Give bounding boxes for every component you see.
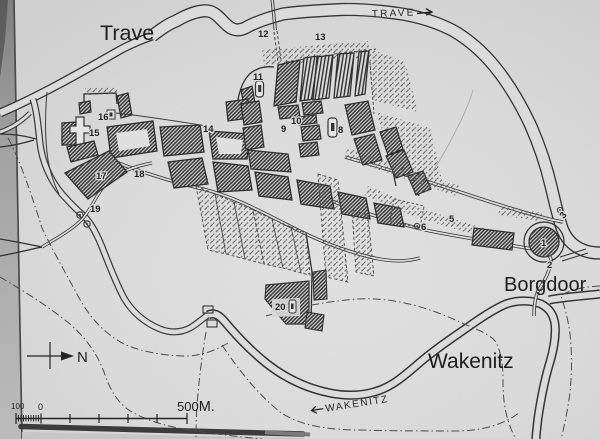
svg-text:TRAVE: TRAVE <box>372 7 416 20</box>
svg-text:8: 8 <box>338 125 343 136</box>
svg-text:19: 19 <box>90 204 101 215</box>
svg-text:11: 11 <box>253 72 264 83</box>
svg-text:16: 16 <box>98 112 109 123</box>
svg-text:9: 9 <box>281 124 286 135</box>
svg-text:15: 15 <box>89 128 100 139</box>
svg-text:1: 1 <box>541 238 547 249</box>
svg-text:10: 10 <box>291 116 302 127</box>
svg-text:20: 20 <box>275 302 286 313</box>
svg-text:17: 17 <box>96 171 107 182</box>
svg-text:6: 6 <box>421 222 426 233</box>
svg-text:5: 5 <box>449 214 455 225</box>
svg-text:0: 0 <box>38 402 43 412</box>
svg-text:2: 2 <box>547 260 552 271</box>
svg-text:18: 18 <box>134 169 145 180</box>
svg-text:14: 14 <box>203 124 214 135</box>
svg-text:500M.: 500M. <box>177 399 215 415</box>
svg-text:100: 100 <box>11 402 25 411</box>
svg-text:Wakenitz: Wakenitz <box>428 350 514 373</box>
svg-text:13: 13 <box>315 32 326 43</box>
svg-text:Trave: Trave <box>100 21 154 45</box>
svg-text:N: N <box>77 349 88 366</box>
svg-text:Borgdoor: Borgdoor <box>504 274 587 296</box>
svg-text:12: 12 <box>258 29 269 40</box>
